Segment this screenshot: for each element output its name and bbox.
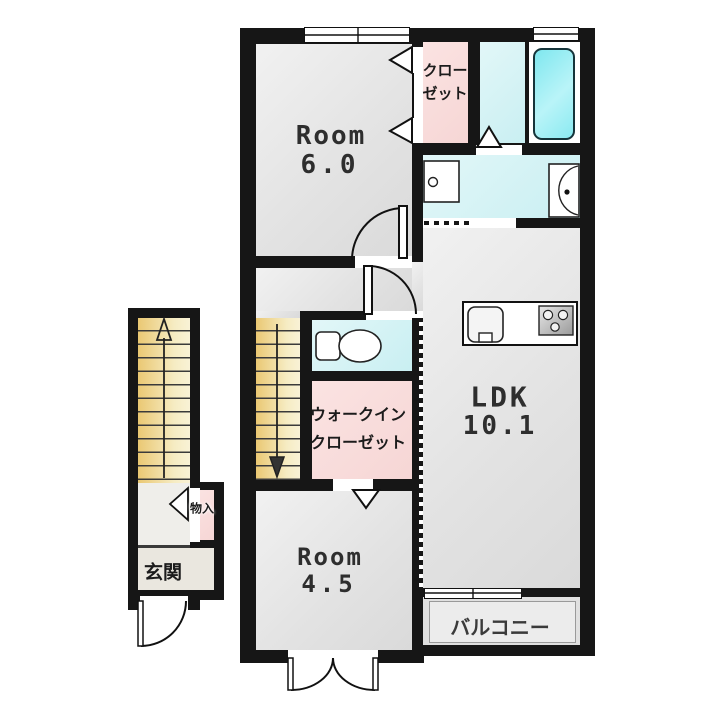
- washroom-accordion-door: [424, 221, 470, 225]
- hallway-floor-2: [256, 311, 300, 318]
- wall-closet-right: [468, 42, 480, 143]
- room6-window: [304, 27, 410, 43]
- kitchen-counter: [462, 301, 578, 346]
- wic-door-opening: [333, 479, 373, 491]
- wall-balcony-bottom: [410, 645, 595, 656]
- closet-label-2: ゼット: [422, 83, 467, 104]
- balcony-window: [424, 588, 522, 599]
- closet-label-1: クロー: [422, 60, 467, 81]
- bath-window: [533, 27, 579, 41]
- floor-plan: Room 6.0 クロー ゼット LDK 10.1 ウォークイン クローゼット …: [0, 0, 720, 720]
- ldk-area: 10.1: [463, 411, 538, 441]
- room45-door-opening: [288, 650, 378, 663]
- wic-label-2: クローゼット: [310, 429, 406, 453]
- landing-floor: [138, 483, 190, 545]
- room45-label: Room: [297, 543, 363, 571]
- stairs-upper: [256, 318, 300, 480]
- closet-door-opening: [412, 47, 423, 143]
- balcony-label: バルコニー: [450, 612, 550, 641]
- wall-outer-right: [580, 28, 595, 656]
- bath-washing-area: [480, 42, 525, 143]
- wall-hatch-texture: [419, 322, 423, 588]
- wic-label-1: ウォークイン: [310, 401, 406, 425]
- wall-room45-top: [240, 479, 424, 491]
- entrance-door-opening: [140, 596, 188, 610]
- bath-door-opening: [476, 145, 522, 155]
- room6-label: Room: [296, 121, 367, 151]
- hallway-floor: [256, 268, 412, 311]
- ldk-label: LDK: [470, 381, 530, 414]
- room6-area: 6.0: [301, 150, 360, 180]
- stairs-lower: [138, 318, 190, 483]
- bathtub: [533, 48, 575, 140]
- hallway-ldk-opening: [412, 262, 423, 311]
- storage-label: 物入: [190, 500, 214, 517]
- toilet-floor: [312, 320, 412, 371]
- toilet-door-opening: [366, 311, 412, 320]
- room45-area: 4.5: [301, 570, 356, 598]
- wall-outer-left: [240, 28, 256, 663]
- washroom-floor: [423, 155, 580, 218]
- genkan-label: 玄関: [144, 558, 182, 585]
- wall-toilet-wic-divider: [300, 371, 412, 381]
- room6-door-opening: [355, 256, 412, 268]
